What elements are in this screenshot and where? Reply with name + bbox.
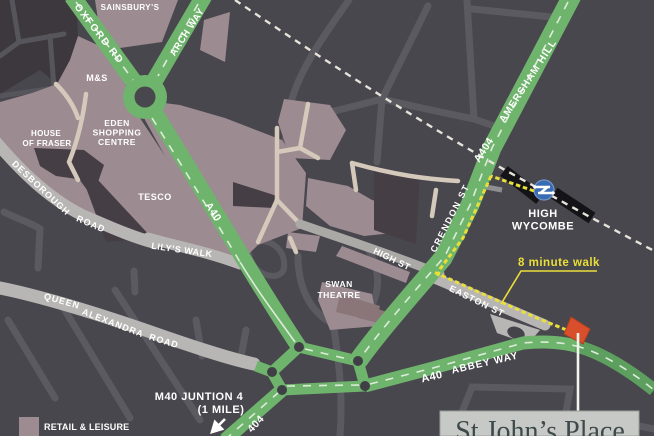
svg-text:CENTRE: CENTRE	[98, 137, 136, 147]
svg-text:HOUSE: HOUSE	[31, 129, 61, 138]
svg-text:M40 JUNTION 4: M40 JUNTION 4	[155, 391, 244, 403]
svg-text:EDEN: EDEN	[104, 118, 130, 128]
svg-text:St John’s Place: St John’s Place	[455, 416, 625, 436]
svg-text:SWAN: SWAN	[325, 279, 353, 289]
svg-text:THEATRE: THEATRE	[317, 290, 360, 300]
svg-text:WYCOMBE: WYCOMBE	[512, 221, 574, 233]
svg-text:SHOPPING: SHOPPING	[93, 128, 142, 138]
svg-text:TESCO: TESCO	[138, 192, 172, 202]
svg-text:RETAIL & LEISURE: RETAIL & LEISURE	[44, 422, 129, 432]
svg-text:HIGH: HIGH	[528, 208, 558, 220]
svg-text:SAINSBURY’S: SAINSBURY’S	[101, 3, 160, 12]
svg-text:8 minute walk: 8 minute walk	[518, 257, 600, 269]
svg-text:(1 MILE): (1 MILE)	[198, 404, 245, 416]
svg-text:OF FRASER: OF FRASER	[23, 139, 72, 148]
svg-text:M&S: M&S	[86, 73, 108, 83]
